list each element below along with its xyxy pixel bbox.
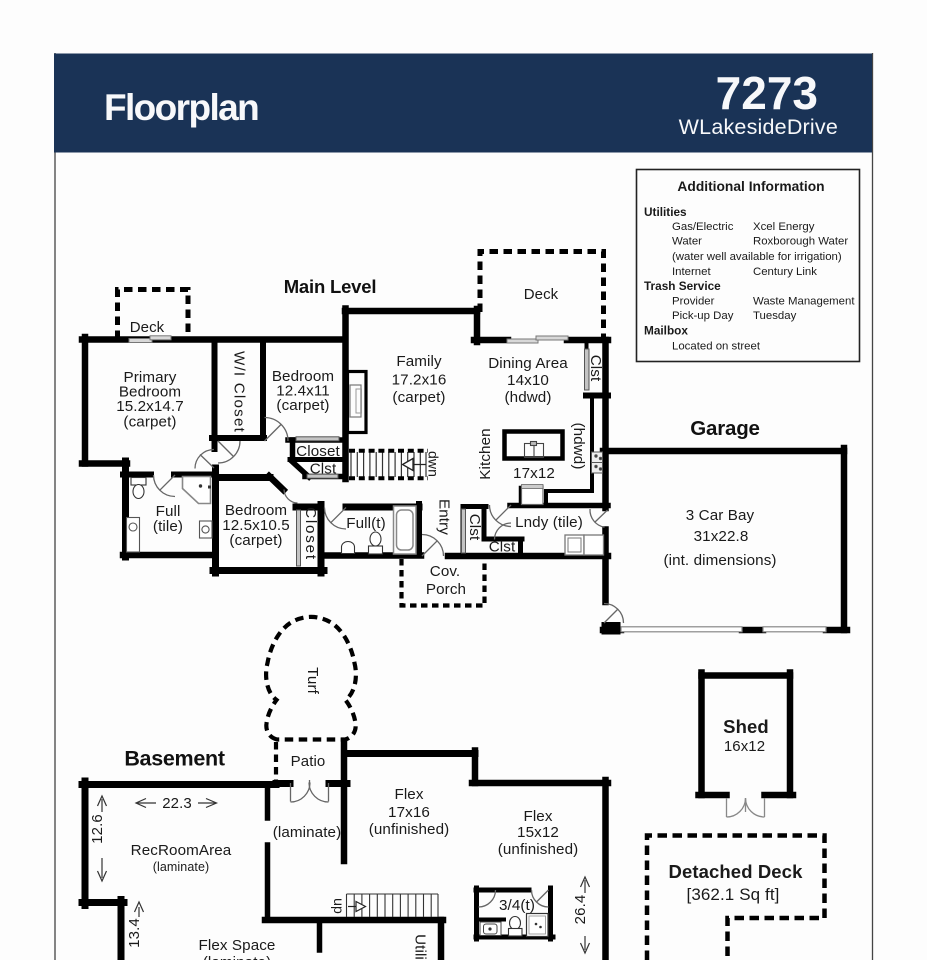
svg-text:W/I Closet: W/I Closet: [231, 351, 248, 433]
svg-text:WLakesideDrive: WLakesideDrive: [679, 115, 838, 139]
svg-text:3/4(t): 3/4(t): [499, 897, 535, 914]
svg-text:Internet: Internet: [672, 266, 711, 278]
svg-text:(laminate): (laminate): [153, 860, 210, 874]
svg-text:Waste Management: Waste Management: [753, 296, 855, 308]
svg-text:Provider: Provider: [672, 296, 715, 308]
svg-text:Gas/Electric: Gas/Electric: [672, 221, 734, 233]
svg-text:(hdwd): (hdwd): [504, 389, 551, 406]
svg-text:dwn: dwn: [426, 451, 442, 477]
svg-text:Floorplan: Floorplan: [104, 87, 258, 128]
svg-text:3 Car Bay: 3 Car Bay: [686, 507, 755, 524]
svg-text:Flex: Flex: [523, 808, 552, 825]
svg-text:[362.1 Sq ft]: [362.1 Sq ft]: [687, 885, 780, 904]
svg-text:Located on street: Located on street: [672, 341, 761, 353]
svg-text:31x22.8: 31x22.8: [694, 528, 749, 545]
svg-text:Basement: Basement: [124, 747, 225, 771]
svg-text:up: up: [331, 898, 347, 914]
svg-text:17x16: 17x16: [388, 804, 430, 821]
svg-text:Clst: Clst: [489, 539, 516, 556]
svg-text:22.3: 22.3: [162, 795, 192, 812]
svg-text:Utility: Utility: [412, 934, 429, 960]
svg-text:Utilities: Utilities: [644, 205, 687, 219]
svg-text:(carpet): (carpet): [123, 414, 176, 431]
svg-text:Additional Information: Additional Information: [677, 179, 824, 194]
svg-text:(tile): (tile): [153, 518, 183, 535]
svg-text:17.2x16: 17.2x16: [392, 372, 447, 389]
svg-text:(hdwd): (hdwd): [570, 422, 587, 469]
svg-text:(laminate): (laminate): [273, 824, 342, 841]
svg-text:Clst: Clst: [587, 355, 604, 382]
svg-text:(unfinished): (unfinished): [498, 841, 579, 858]
svg-text:17x12: 17x12: [513, 465, 555, 482]
svg-text:Century Link: Century Link: [753, 266, 817, 278]
svg-text:Lndy (tile): Lndy (tile): [515, 514, 583, 531]
svg-text:Shed: Shed: [723, 716, 769, 737]
svg-text:(carpet): (carpet): [392, 389, 445, 406]
svg-text:15.2x14.7: 15.2x14.7: [116, 398, 184, 415]
svg-text:Flex: Flex: [394, 786, 423, 803]
svg-text:(carpet): (carpet): [229, 532, 282, 549]
svg-text:Water: Water: [672, 236, 702, 248]
svg-text:Porch: Porch: [426, 581, 466, 598]
svg-text:Trash Service: Trash Service: [644, 279, 721, 293]
svg-text:26.4: 26.4: [572, 895, 589, 925]
svg-text:Deck: Deck: [524, 286, 559, 303]
svg-text:(unfinished): (unfinished): [369, 821, 450, 838]
svg-text:(laminate): (laminate): [203, 954, 272, 960]
svg-text:Pick-up Day: Pick-up Day: [672, 310, 734, 322]
svg-text:Clst: Clst: [310, 461, 337, 478]
svg-text:Clst: Clst: [466, 514, 483, 541]
svg-text:Full(t): Full(t): [346, 515, 386, 532]
svg-text:15x12: 15x12: [517, 824, 559, 841]
svg-text:Main Level: Main Level: [284, 276, 377, 297]
svg-text:Mailbox: Mailbox: [644, 324, 688, 338]
svg-text:Turf: Turf: [304, 667, 321, 695]
svg-text:(int. dimensions): (int. dimensions): [663, 552, 776, 569]
svg-text:(carpet): (carpet): [276, 397, 329, 414]
svg-text:Xcel Energy: Xcel Energy: [753, 221, 815, 233]
svg-text:Tuesday: Tuesday: [753, 310, 797, 322]
svg-text:13.4: 13.4: [126, 918, 143, 948]
svg-text:Garage: Garage: [690, 417, 759, 440]
svg-text:12.6: 12.6: [89, 814, 106, 844]
svg-text:7273: 7273: [716, 67, 818, 119]
svg-text:Closet: Closet: [296, 443, 340, 460]
svg-text:Closet: Closet: [302, 507, 319, 561]
svg-text:16x12: 16x12: [724, 738, 765, 755]
svg-text:Family: Family: [396, 353, 442, 370]
svg-text:Deck: Deck: [130, 319, 165, 336]
svg-text:Flex Space: Flex Space: [199, 937, 276, 954]
svg-text:14x10: 14x10: [507, 372, 549, 389]
svg-text:(water well available for irri: (water well available for irrigation): [672, 251, 842, 263]
svg-text:Entry: Entry: [436, 499, 453, 535]
svg-text:Patio: Patio: [291, 753, 326, 770]
svg-text:Dining Area: Dining Area: [488, 355, 568, 372]
svg-text:Cov.: Cov.: [430, 563, 461, 580]
svg-text:Roxborough Water: Roxborough Water: [753, 236, 848, 248]
svg-text:Kitchen: Kitchen: [477, 428, 494, 479]
svg-text:RecRoomArea: RecRoomArea: [131, 842, 232, 859]
svg-text:Detached Deck: Detached Deck: [669, 861, 804, 882]
